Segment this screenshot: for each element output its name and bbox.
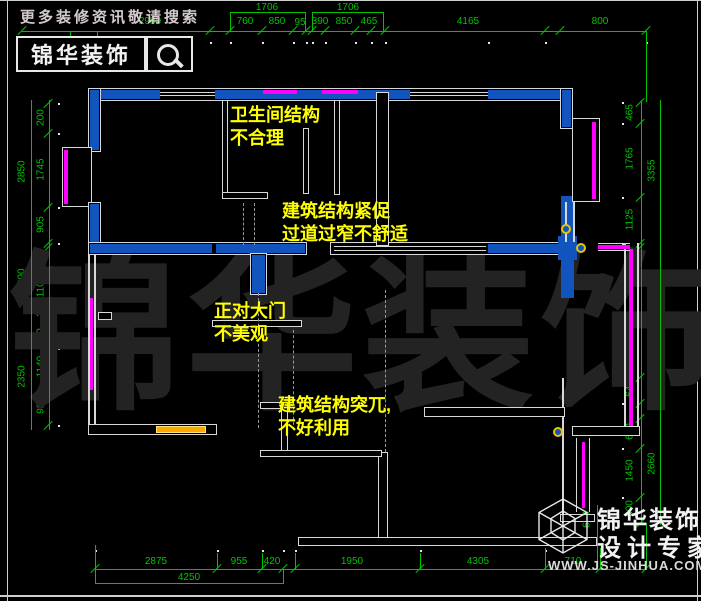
wall-fill [297,90,322,99]
dim-label: 4165 [438,16,498,27]
cad-point [58,207,60,209]
cad-point [325,42,327,44]
wall [222,100,228,196]
dim-tick [635,119,644,128]
wall [573,202,575,242]
window [90,298,93,390]
dimension-line [31,100,32,430]
window [160,95,215,96]
cad-point [306,42,308,44]
cad-point [312,42,314,44]
dimension-line [22,31,646,32]
wall-fill [562,90,571,127]
cad-point [262,42,264,44]
dimension-line [641,100,642,525]
wall-fill [263,94,297,99]
window [598,245,630,249]
wall [637,243,639,433]
logo-cube-icon [534,497,592,555]
dim-label: 2660 [647,442,658,486]
promo-text: 更多装修资讯敬请搜索 [20,6,200,27]
extension-line [383,12,384,31]
wall [598,243,630,244]
extension-line [95,545,96,569]
dimension-line [95,583,283,584]
dim-label: 465 [625,91,636,135]
extension-line [283,569,284,584]
cad-point [295,550,297,552]
cad-point [293,42,295,44]
wall-fill [488,90,560,99]
wall-fill [488,244,565,253]
wall-fill [561,258,574,298]
wall [334,100,340,195]
note-entry: 正对大门 不美观 [214,300,286,346]
extension-line [295,553,296,569]
window [160,92,215,93]
dim-tick [635,98,644,107]
window [592,122,596,199]
wall-fill [322,94,358,99]
cad-point [545,42,547,44]
window [64,150,68,204]
wall [624,243,626,433]
note-line: 建筑结构突兀, [278,394,391,417]
cad-point [622,197,624,199]
cad-point [488,42,490,44]
wall [222,192,268,199]
fixture-symbol [576,243,586,253]
note-line: 不好利用 [278,417,391,440]
search-box [146,36,193,72]
note-line: 不合理 [230,127,320,150]
dim-label: 420 [252,556,292,567]
dashed-line [243,203,244,245]
logo-website: WWW.JS-JINHUA.COM [548,558,701,573]
extension-line [217,553,218,569]
cad-point [230,42,232,44]
wall [572,426,640,436]
dimension-line [660,100,661,525]
extension-line [262,553,263,569]
cad-point [420,550,422,552]
extension-line [95,569,96,584]
wall-fill [90,90,99,150]
cad-point [622,123,624,125]
cad-point [371,42,373,44]
extension-line [646,31,647,102]
wall-fill [90,244,212,253]
cad-point [355,42,357,44]
cad-point [217,550,219,552]
cad-point [385,42,387,44]
cad-point [210,42,212,44]
dim-label: 4250 [159,572,219,583]
note-structure: 建筑结构突兀, 不好利用 [278,394,391,440]
cad-point [283,550,285,552]
note-line: 卫生间结构 [230,104,320,127]
cad-point [622,448,624,450]
dim-label: 1765 [625,137,636,181]
dim-label: 1950 [322,556,382,567]
cad-floorplan-canvas: 锦 华 装 饰 更多装修资讯敬请搜索 锦华装饰 1706 1706 2980 7… [0,0,701,601]
dimension-line [49,100,50,430]
dim-label: 1745 [36,148,47,192]
magnifier-handle [173,58,184,69]
dim-label: 200 [36,96,47,140]
note-bathroom: 卫生间结构 不合理 [230,104,320,150]
dim-label: 4305 [448,556,508,567]
extension-line [230,12,231,31]
wall [378,452,388,542]
wall [98,312,112,320]
wall [94,255,96,427]
window [334,246,486,247]
dim-label: 800 [570,16,630,27]
dim-tick [635,444,644,453]
wall [598,250,630,251]
note-line: 建筑结构紧促 [282,200,408,223]
dim-label: 3355 [647,149,658,193]
wall-fill [90,204,99,247]
extension-line [420,553,421,569]
dim-tick [635,193,644,202]
note-line: 正对大门 [214,300,286,323]
company-logo: 锦华装饰 设计专家 WWW.JS-JINHUA.COM [534,497,592,560]
cad-point [622,102,624,104]
window [410,95,488,96]
extension-line [312,12,313,31]
note-corridor: 建筑结构紧促 过道过窄不舒适 [282,200,408,246]
dimension-line [230,12,306,13]
frame-bottom [0,595,701,597]
note-line: 不美观 [214,323,286,346]
frame-top [0,0,701,1]
wall-fill [252,255,265,293]
window [629,249,633,429]
extension-line [305,12,306,31]
furniture-orange [156,426,206,433]
wall [565,202,567,242]
cad-point [262,550,264,552]
fixture-symbol [553,427,563,437]
window [410,92,488,93]
window [334,250,486,251]
dashed-line [254,203,255,245]
dim-label: 2875 [126,556,186,567]
cad-point [622,497,624,499]
dimension-line [312,12,384,13]
dim-label: 2850 [17,150,28,194]
note-line: 过道过窄不舒适 [282,223,408,246]
fixture-symbol [561,224,571,234]
wall [424,407,565,417]
wall [260,450,382,457]
wall-fill [215,90,263,99]
brand-box: 锦华装饰 [16,36,146,72]
cad-point [58,133,60,135]
cad-point [58,103,60,105]
